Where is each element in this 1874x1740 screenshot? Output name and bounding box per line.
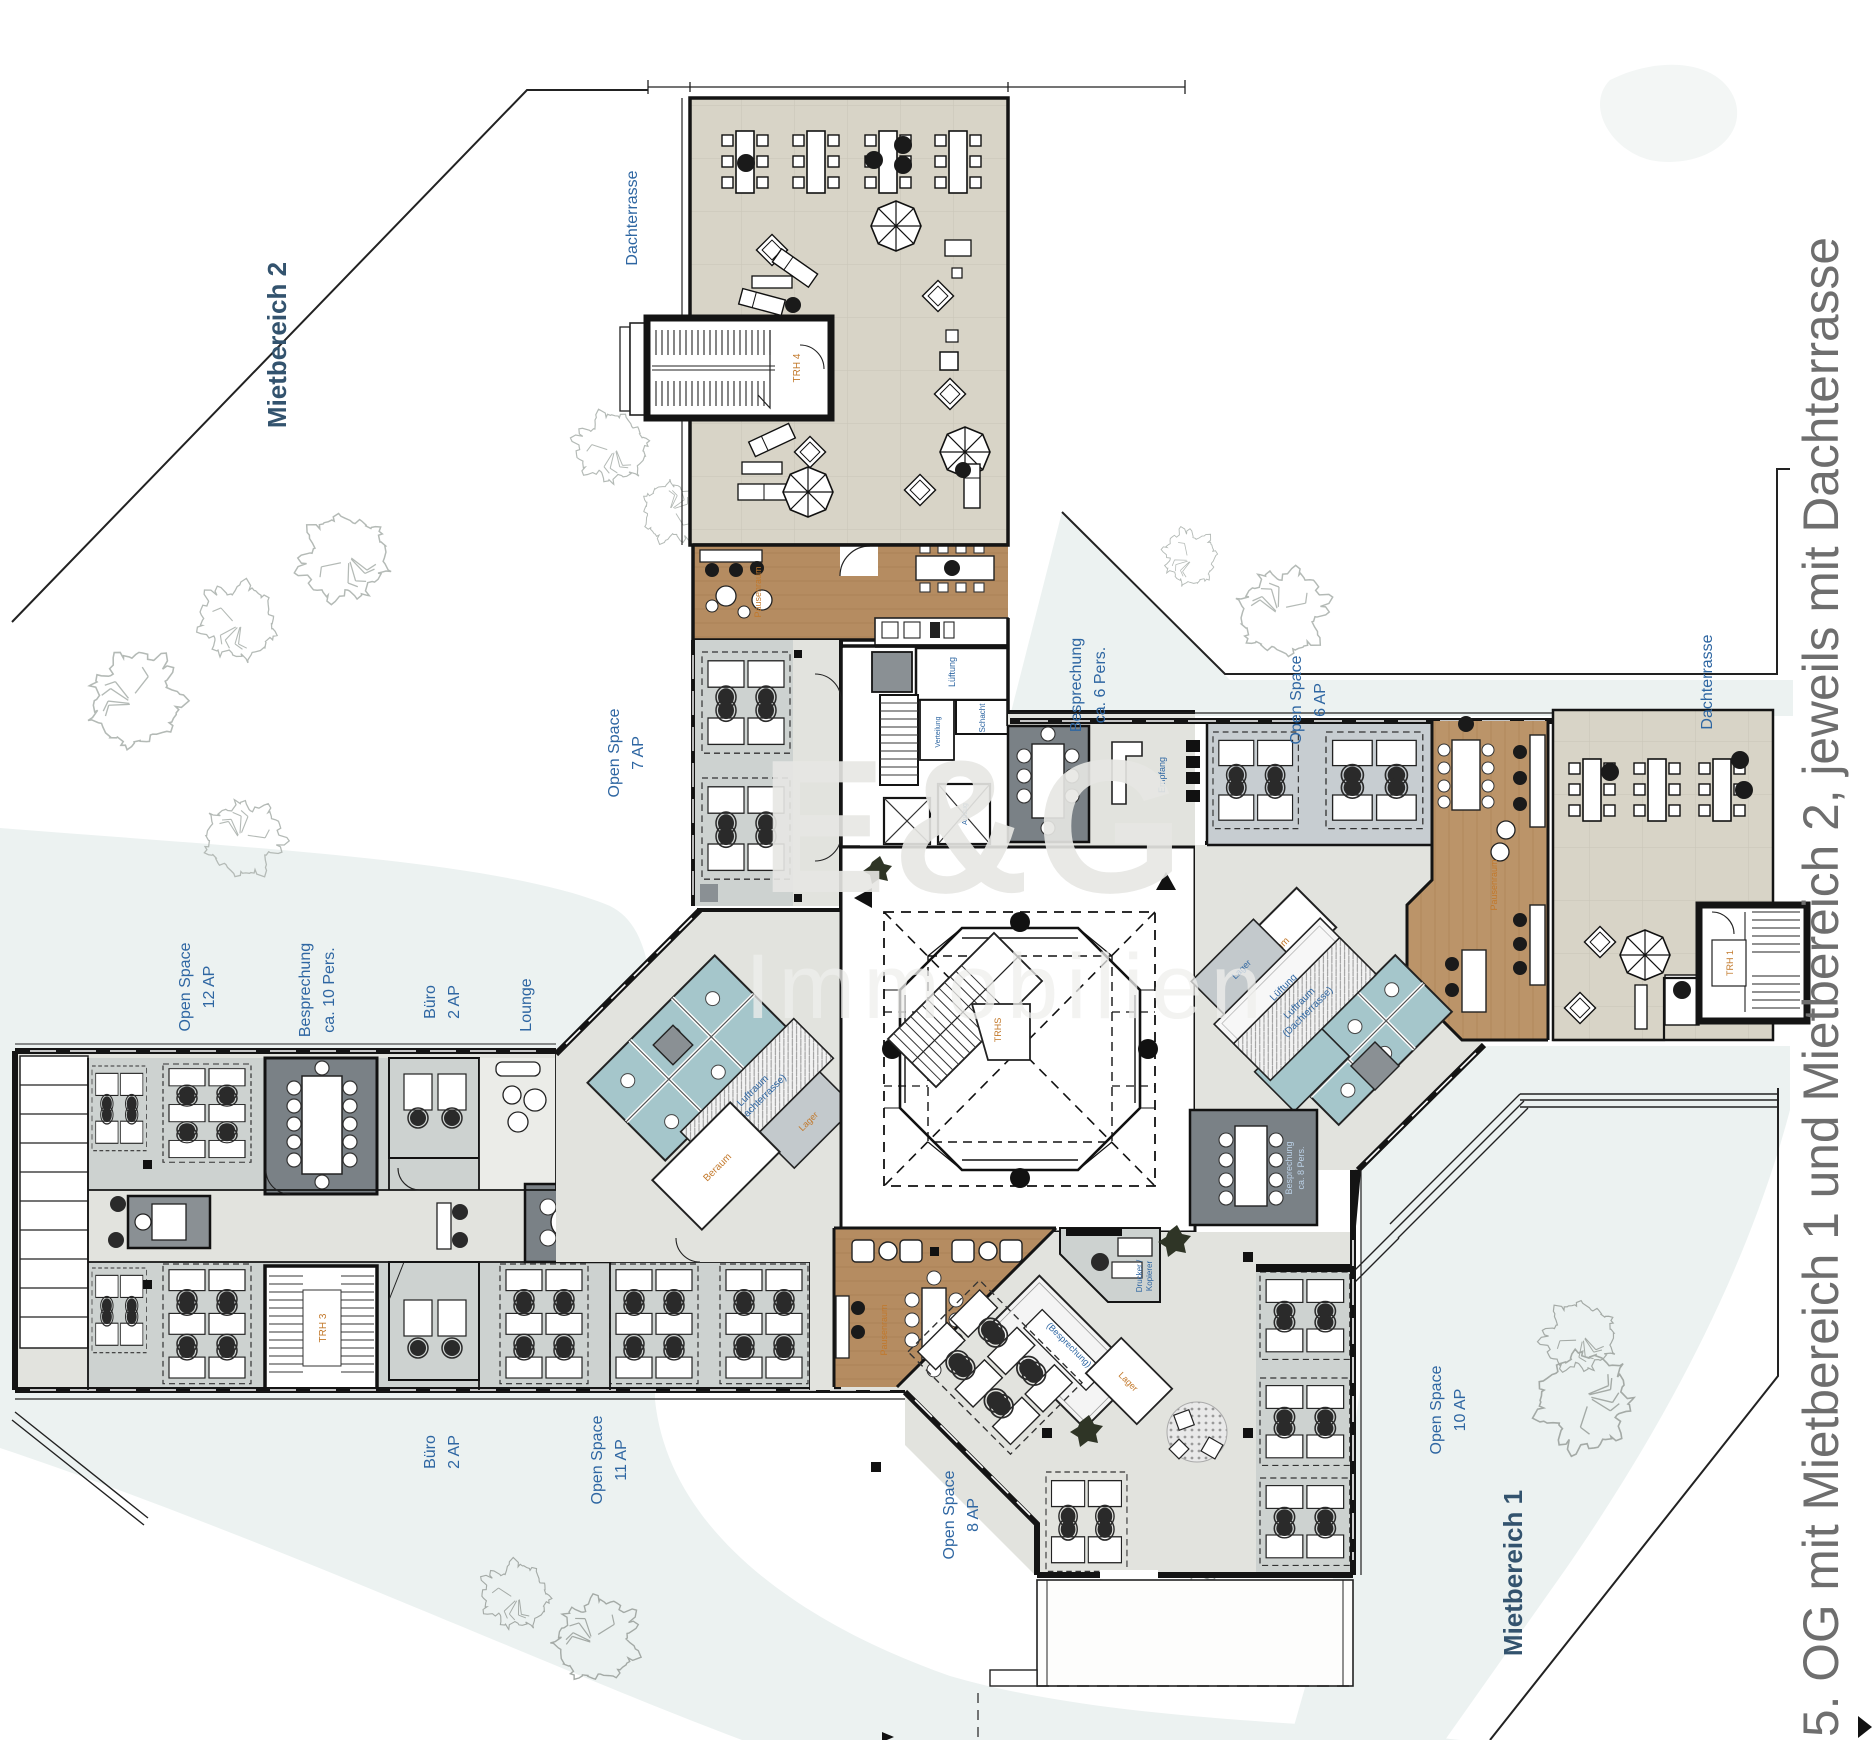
svg-text:Open Space: Open Space — [941, 1470, 958, 1559]
svg-text:Dachterrasse: Dachterrasse — [624, 170, 641, 265]
svg-text:TRH 1: TRH 1 — [1725, 950, 1735, 976]
svg-text:12 AP: 12 AP — [201, 966, 218, 1009]
svg-text:Mietbereich 1: Mietbereich 1 — [1498, 1490, 1528, 1656]
svg-text:Open Space: Open Space — [177, 942, 194, 1031]
svg-text:10 AP: 10 AP — [1452, 1389, 1469, 1432]
svg-text:TRH 3: TRH 3 — [318, 1313, 329, 1342]
svg-text:8 AP: 8 AP — [965, 1498, 982, 1532]
svg-text:ca. 10 Pers.: ca. 10 Pers. — [321, 947, 338, 1032]
svg-text:2 AP: 2 AP — [446, 985, 463, 1019]
svg-text:E&G: E&G — [760, 721, 1190, 933]
svg-text:Lüftung: Lüftung — [947, 657, 957, 687]
svg-text:Dachterrasse: Dachterrasse — [1699, 634, 1716, 729]
svg-text:Besprechung: Besprechung — [1284, 1141, 1294, 1194]
svg-text:Open Space: Open Space — [589, 1415, 606, 1504]
svg-text:Büro: Büro — [422, 985, 439, 1019]
svg-text:Kopierer: Kopierer — [1145, 1261, 1154, 1292]
svg-text:Büro: Büro — [422, 1435, 439, 1469]
svg-text:7 AP: 7 AP — [630, 736, 647, 770]
svg-text:Pausenraum: Pausenraum — [1489, 859, 1499, 910]
svg-text:TRH 4: TRH 4 — [792, 353, 803, 382]
svg-text:Immobilien: Immobilien — [745, 936, 1270, 1038]
svg-text:Drucker /: Drucker / — [1135, 1259, 1144, 1292]
svg-text:ca. 8 Pers.: ca. 8 Pers. — [1296, 1146, 1306, 1189]
svg-text:Besprechung: Besprechung — [297, 943, 314, 1037]
svg-text:Pausenraum: Pausenraum — [753, 566, 763, 617]
svg-text:Mietbereich 2: Mietbereich 2 — [262, 262, 292, 428]
svg-text:2 AP: 2 AP — [446, 1435, 463, 1469]
svg-text:5. OG mit Mietbereich 1 und Mi: 5. OG mit Mietbereich 1 und Mietbereich … — [1793, 237, 1849, 1737]
svg-text:Open Space: Open Space — [1288, 655, 1305, 744]
svg-text:Lounge: Lounge — [518, 978, 535, 1031]
svg-text:11 AP: 11 AP — [613, 1439, 630, 1481]
svg-text:Open Space: Open Space — [606, 708, 623, 797]
svg-text:Pausenraum: Pausenraum — [879, 1304, 889, 1355]
svg-text:Besprechung: Besprechung — [1068, 638, 1085, 732]
svg-text:6 AP: 6 AP — [1312, 683, 1329, 717]
svg-text:Open Space: Open Space — [1428, 1365, 1445, 1454]
svg-text:ca. 6 Pers.: ca. 6 Pers. — [1092, 647, 1109, 723]
